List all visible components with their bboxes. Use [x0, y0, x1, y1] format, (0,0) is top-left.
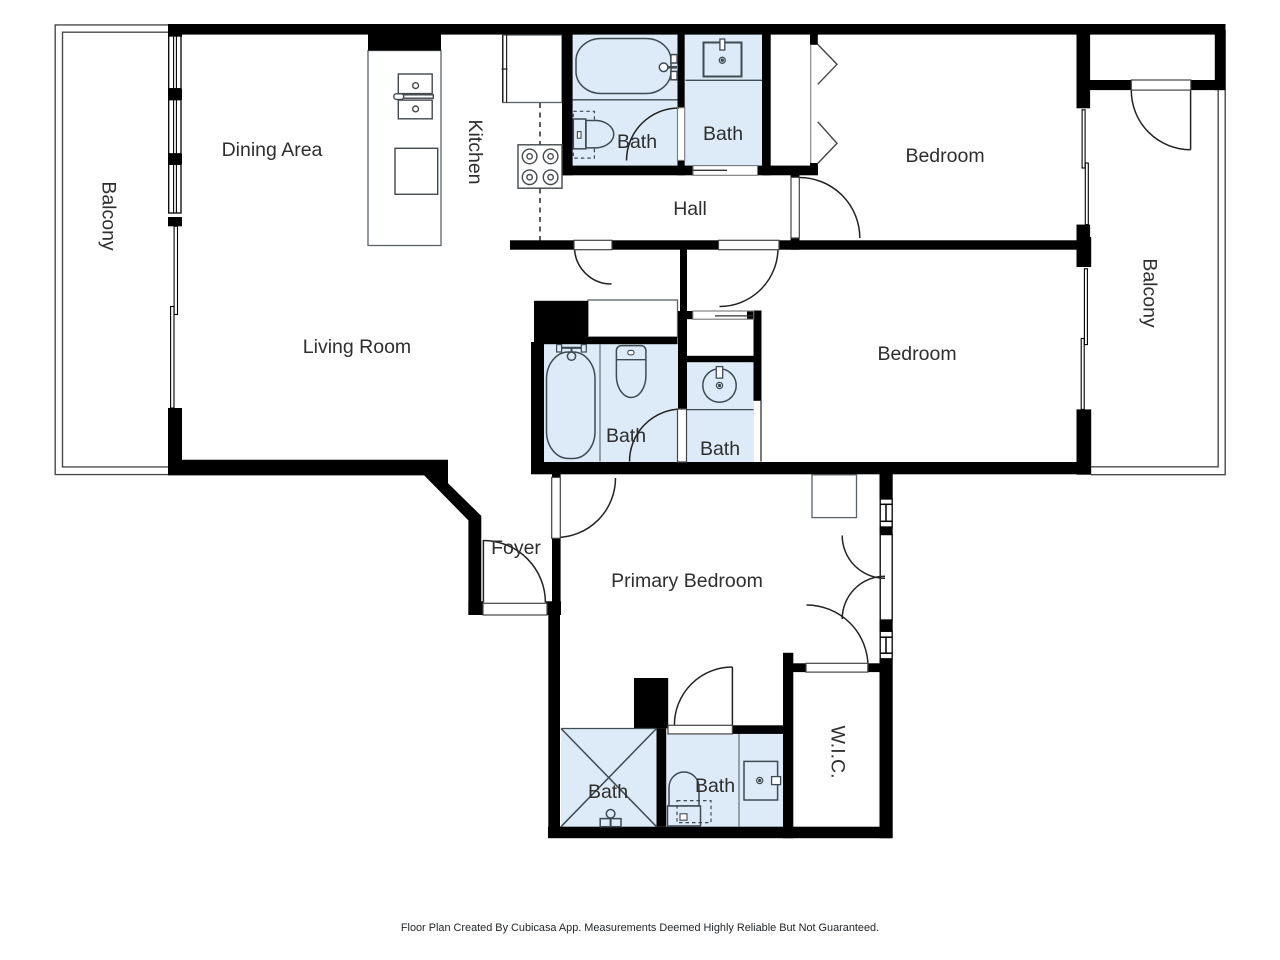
svg-text:Primary Bedroom: Primary Bedroom	[611, 570, 763, 592]
svg-text:Bath: Bath	[703, 123, 743, 145]
svg-text:Hall: Hall	[673, 198, 707, 220]
svg-text:Bath: Bath	[695, 775, 735, 797]
svg-text:Balcony: Balcony	[1139, 258, 1161, 328]
svg-text:Bath: Bath	[617, 131, 657, 153]
svg-text:Bath: Bath	[588, 781, 628, 803]
svg-text:Dining Area: Dining Area	[222, 139, 323, 161]
svg-text:Foyer: Foyer	[491, 537, 541, 559]
svg-text:Living Room: Living Room	[303, 336, 411, 358]
svg-text:Bedroom: Bedroom	[905, 145, 984, 167]
svg-text:Bath: Bath	[700, 438, 740, 460]
svg-text:Kitchen: Kitchen	[464, 119, 486, 184]
svg-text:Bedroom: Bedroom	[877, 343, 956, 365]
svg-text:Floor Plan Created By Cubicasa: Floor Plan Created By Cubicasa App. Meas…	[401, 922, 879, 934]
svg-text:W.I.C.: W.I.C.	[827, 725, 849, 778]
svg-text:Bath: Bath	[606, 425, 646, 447]
svg-text:Balcony: Balcony	[98, 181, 120, 251]
